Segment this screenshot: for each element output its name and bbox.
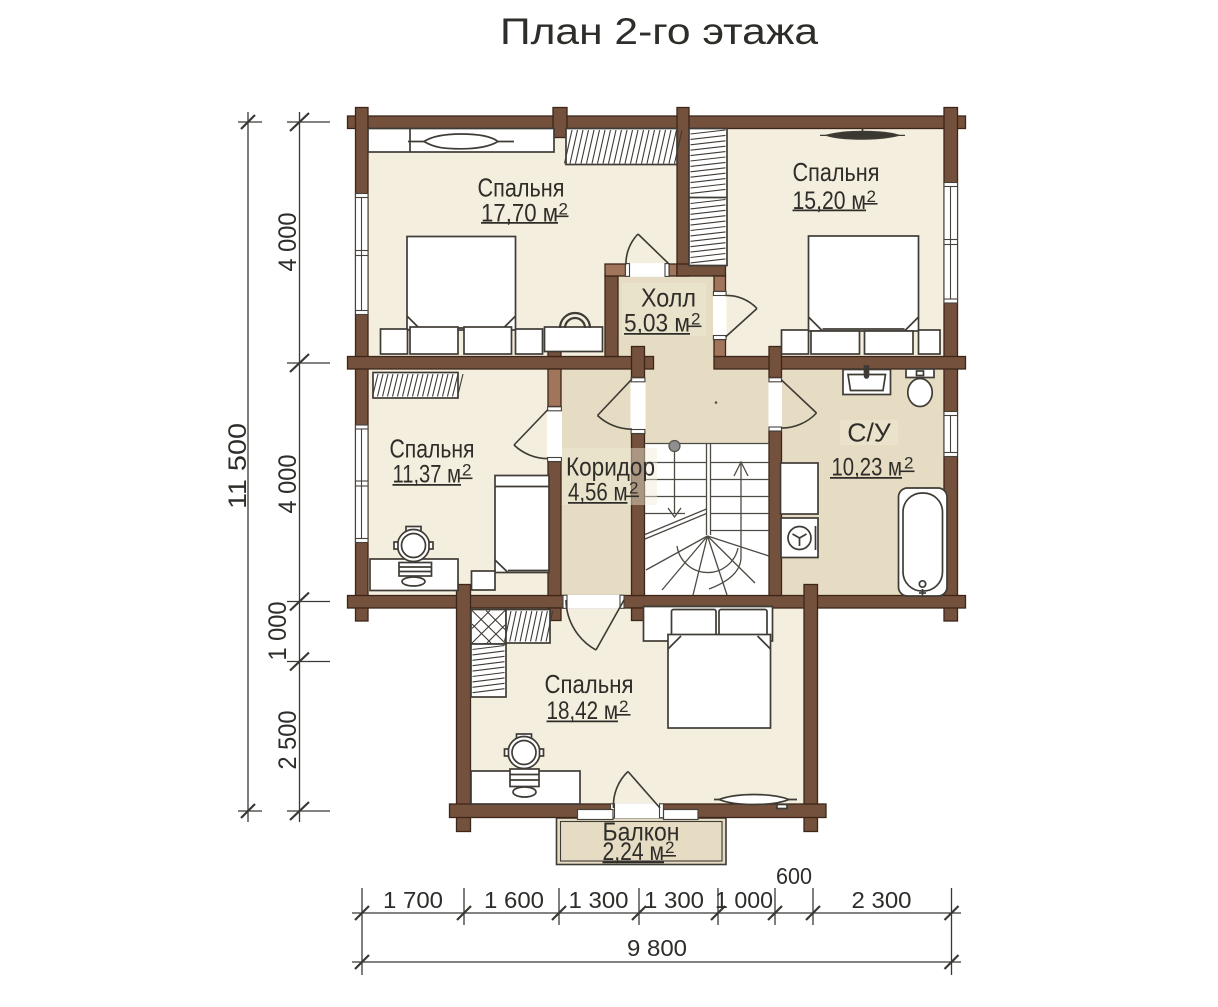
svg-text:4 000: 4 000	[274, 213, 302, 272]
svg-text:4 000: 4 000	[274, 455, 302, 514]
svg-text:1 300: 1 300	[644, 887, 704, 913]
svg-text:2: 2	[462, 461, 471, 480]
svg-text:1 000: 1 000	[264, 602, 292, 661]
svg-text:1 300: 1 300	[569, 887, 629, 913]
svg-text:Спальня: Спальня	[793, 157, 880, 187]
svg-text:2: 2	[665, 838, 674, 857]
svg-text:600: 600	[776, 863, 812, 889]
svg-text:Спальня: Спальня	[545, 669, 634, 699]
svg-text:Холл: Холл	[641, 283, 696, 313]
svg-text:План 2-го этажа: План 2-го этажа	[500, 11, 818, 52]
svg-text:2: 2	[629, 479, 638, 498]
svg-text:2 300: 2 300	[852, 887, 912, 913]
svg-text:2: 2	[619, 697, 628, 716]
svg-text:Спальня: Спальня	[478, 173, 565, 203]
svg-text:1 000: 1 000	[715, 887, 773, 913]
svg-text:Спальня: Спальня	[390, 434, 475, 464]
svg-text:С/У: С/У	[847, 418, 891, 448]
svg-text:Коридор: Коридор	[566, 452, 655, 482]
svg-text:2 500: 2 500	[274, 711, 302, 770]
svg-text:2: 2	[904, 454, 913, 473]
svg-text:9 800: 9 800	[627, 935, 687, 961]
svg-text:11 500: 11 500	[224, 423, 252, 509]
svg-text:1 700: 1 700	[383, 887, 443, 913]
svg-text:1 600: 1 600	[484, 887, 544, 913]
